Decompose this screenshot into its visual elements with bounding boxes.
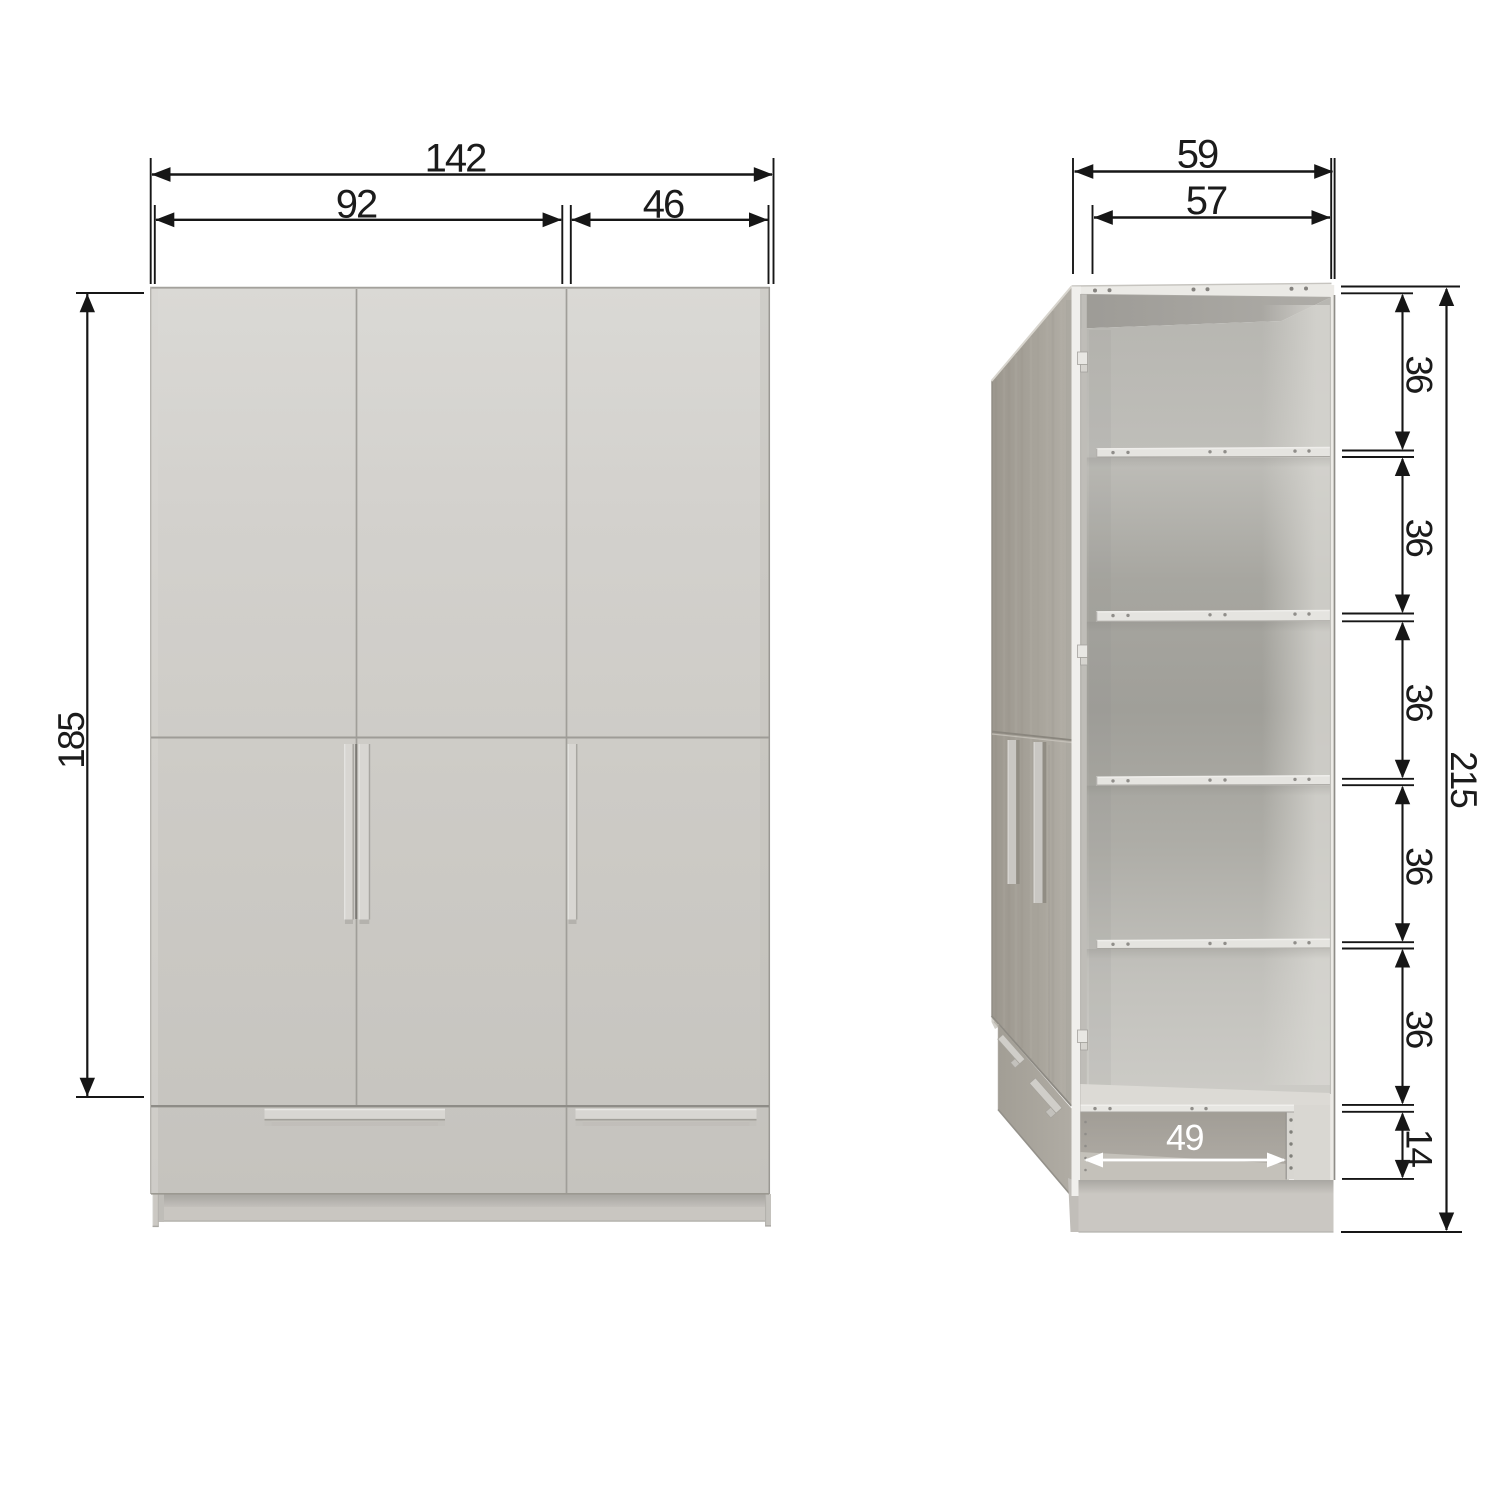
svg-text:57: 57 (1186, 179, 1227, 223)
svg-text:36: 36 (1399, 683, 1440, 721)
svg-text:14: 14 (1399, 1129, 1440, 1168)
svg-text:36: 36 (1399, 847, 1440, 885)
svg-text:185: 185 (51, 712, 92, 769)
svg-text:36: 36 (1399, 355, 1440, 393)
svg-text:49: 49 (1166, 1117, 1204, 1158)
svg-text:92: 92 (336, 182, 377, 226)
svg-text:36: 36 (1399, 1010, 1440, 1048)
svg-text:59: 59 (1177, 133, 1218, 177)
svg-text:36: 36 (1399, 519, 1440, 557)
svg-text:215: 215 (1443, 751, 1484, 808)
svg-text:142: 142 (425, 137, 486, 181)
svg-text:46: 46 (643, 182, 684, 226)
